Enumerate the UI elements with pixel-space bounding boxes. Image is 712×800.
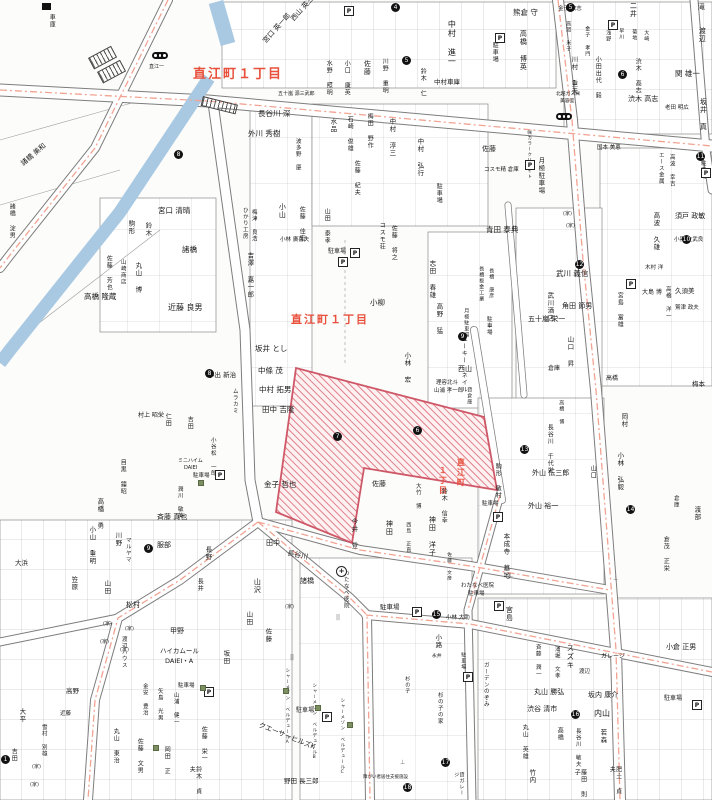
map-label: 小谷松 一郎	[209, 437, 215, 477]
bus-stop-icon	[556, 113, 572, 120]
map-label: 梅津 良浩	[250, 209, 256, 242]
parking-icon: P	[608, 20, 618, 30]
map-label: 北越ガス㈱	[556, 92, 580, 97]
map-label: 斉藤 真也	[157, 514, 187, 521]
map-label: 木村 洋	[645, 266, 663, 272]
map-label: 高波 幸吉	[668, 154, 674, 187]
map-label: 外山 裕一	[528, 503, 558, 510]
map-label: 山田 泰孝	[323, 208, 329, 244]
map-label: 老田 明広	[665, 106, 689, 112]
map-label: 丸山 東治	[112, 728, 118, 764]
map-geometry	[0, 0, 712, 800]
map-label: 今井 登	[350, 518, 357, 550]
map-label: 川村 重夫	[570, 56, 577, 95]
map-label: 武川 義信	[556, 270, 588, 278]
map-label: 佐藤	[363, 60, 370, 76]
map-label: 村上 昭栄	[138, 413, 164, 419]
map-label: 高橋 博英	[519, 30, 526, 71]
map-label: 障がい者居住支援施設	[363, 776, 408, 781]
map-label: 目黒 鐘昭	[119, 459, 125, 495]
map-label: 直江一	[149, 65, 164, 70]
map-label: 杉の子	[404, 676, 409, 694]
map-label: 竹内	[528, 769, 535, 784]
district-label: 直江町１丁目	[193, 68, 283, 82]
building-number-badge: 12	[575, 260, 584, 269]
map-label: 笠原	[70, 576, 77, 591]
map-label: 丸山 英雄	[521, 724, 527, 760]
parking-icon: P	[338, 257, 348, 267]
map-label: 貸ガレージ	[453, 772, 464, 800]
map-label: 吉田	[10, 748, 16, 762]
map-label: 坂井 真	[699, 98, 706, 131]
field-mark: ⊥	[400, 760, 405, 766]
map-label: 神田	[385, 520, 392, 536]
building-marker	[198, 480, 204, 486]
map-label: 波多野 慶	[294, 138, 300, 171]
map-label: 中村車庫	[434, 79, 460, 86]
map-label: 小柳	[370, 299, 385, 307]
map-label: 山浦 孝一郎	[434, 389, 463, 395]
map-label: コスモ荘	[378, 222, 384, 250]
map-label: 涌堀 文孝	[553, 646, 559, 679]
map-label: シャーメゾン ベルデュールC	[339, 698, 344, 776]
map-label: 小林 大助	[446, 616, 470, 622]
map-label: 佐藤	[264, 628, 271, 643]
district-label: 直江町	[456, 458, 464, 488]
map-label: 川野	[114, 532, 121, 547]
map-label: 大平	[18, 708, 25, 723]
building-number-badge: 5	[566, 3, 575, 12]
house-marker: (家)	[120, 648, 129, 653]
map-label: わたなべ医院	[461, 584, 494, 590]
map-label: 大竹 博	[414, 483, 420, 510]
building-number-badge: 14	[626, 505, 635, 514]
map-label: 熊倉 守	[513, 9, 538, 17]
building-marker	[315, 705, 321, 711]
map-label: 山田	[245, 611, 252, 626]
map-label: 松村	[126, 602, 140, 609]
city-block	[250, 106, 312, 406]
map-label: 西島 正直	[405, 522, 410, 553]
city-block	[0, 520, 292, 800]
house-marker: (家)	[563, 212, 572, 217]
map-label: 山口	[589, 465, 595, 479]
map-label: 鈴木 信幸	[440, 488, 446, 524]
map-label: 坂田	[222, 650, 229, 665]
building-marker	[200, 685, 206, 691]
map-label: 車庫	[48, 14, 54, 28]
map-label: ガーデンのぞみ	[482, 662, 488, 708]
map-label: 梅田 野作	[366, 113, 372, 149]
map-label: 浅野	[605, 30, 610, 42]
map-label: 金子 哲也	[264, 481, 296, 489]
map-label: 小林 弘毅	[616, 452, 623, 491]
map-label: 高橋	[606, 376, 618, 382]
building-number-badge: 5	[402, 56, 411, 65]
parking-icon: P	[215, 470, 225, 480]
building-number-badge: 10	[682, 235, 691, 244]
map-label: 高野	[66, 688, 79, 695]
field-mark: ⊥	[613, 576, 618, 582]
map-label: 杉の子の家	[436, 692, 442, 725]
map-label: 倉庫	[672, 495, 678, 508]
map-label: 宮口 清晴	[158, 207, 190, 215]
map-label: 小山	[278, 203, 285, 219]
map-label: 長橋 康彦	[488, 268, 493, 299]
map-label: 鷲津 政夫	[675, 306, 699, 312]
map-label: 渡部	[693, 506, 700, 521]
map-label: 田中	[266, 540, 280, 547]
map-label: 駐車場	[468, 592, 485, 598]
map-label: 佐藤 将之	[390, 225, 396, 261]
map-label: 早川	[618, 28, 623, 40]
map-label: エース金属	[657, 152, 663, 185]
map-label: マルヤマ	[124, 537, 130, 563]
map-label: 諸橋	[300, 578, 314, 585]
map-label: 駒形 敏村	[494, 463, 500, 499]
map-label: 山口 昇	[566, 336, 573, 368]
map-label: 高橋	[556, 727, 562, 741]
map-label: 志田 春雄	[428, 260, 435, 299]
map-label: 仁田	[164, 413, 170, 427]
map-label: 山浦 健一	[172, 692, 178, 725]
map-label: 長井	[196, 578, 202, 592]
building-number-badge: 13	[520, 445, 529, 454]
map-label: 駒形	[127, 220, 134, 235]
house-marker: (家)	[566, 224, 575, 229]
map-viewport[interactable]: 直江町１丁目直江町１丁目直江町１丁目車庫直江一諸橋 美和諸橋 淀男宮口 清晴駒形…	[0, 0, 712, 800]
map-label: 吉田	[186, 416, 192, 430]
map-label: 山沢	[253, 578, 260, 594]
map-label: 渋木 高志	[628, 96, 658, 103]
map-label: 高橋 洋一	[664, 286, 670, 319]
map-label: 高波 久雄	[652, 212, 659, 251]
map-label: 駐車場	[664, 696, 682, 702]
building-marker	[347, 722, 353, 728]
map-label: DAIEI・A	[165, 658, 193, 665]
building-number-badge: 18	[403, 783, 412, 792]
map-label: 駐車場	[193, 474, 210, 480]
map-label: ミニハイム	[178, 459, 203, 464]
map-label: 駐車場	[485, 316, 491, 336]
map-label: 高岡 米子	[565, 21, 570, 52]
bus-stop-icon	[152, 52, 168, 59]
map-label: 大島 博	[642, 290, 662, 296]
map-label: ハイカムール	[160, 648, 199, 655]
map-label: 高橋 勇	[96, 498, 103, 530]
map-label: 金子 孝門	[584, 26, 589, 57]
map-label: 金安 豊治	[141, 683, 147, 716]
map-label: 美容室	[560, 99, 574, 104]
map-label: ㈱カラークリエイト	[526, 130, 531, 180]
map-label: 坂内 康介	[588, 692, 618, 699]
building-number-badge: 8	[205, 369, 214, 378]
map-label: 駐車場	[380, 604, 400, 611]
map-label: 野田 長三郎	[284, 778, 319, 785]
house-marker: (家)	[103, 622, 112, 627]
map-label: 佐藤 栄一	[200, 726, 206, 762]
map-label: 近藤	[60, 712, 71, 718]
map-label: 高橋 隆蔵	[84, 293, 116, 301]
map-label: 岡村	[620, 413, 627, 428]
map-label: 西山	[458, 366, 472, 373]
building-number-badge: 6	[618, 70, 627, 79]
map-label: 渋木 高志	[634, 58, 640, 94]
map-label: 駐車場	[328, 249, 346, 255]
map-label: 高野 猛	[435, 303, 442, 335]
building-number-badge: 7	[333, 432, 342, 441]
house-marker: (家)	[32, 765, 41, 770]
map-label: 貸倉庫	[466, 387, 471, 405]
house-marker: (家)	[100, 640, 109, 645]
building-marker	[153, 745, 159, 751]
map-label: 外山 伝三郎	[532, 470, 569, 477]
map-label: 山崎商店	[119, 259, 125, 285]
parking-icon: P	[692, 700, 702, 710]
parking-icon: P	[322, 712, 332, 722]
map-label: 内山	[594, 710, 610, 718]
map-label: 鈴木	[144, 222, 151, 237]
map-label: 諸橋 淀男	[8, 203, 14, 239]
map-label: 駐車場	[296, 708, 314, 714]
map-label: 中條 茂	[258, 367, 283, 375]
map-label: 二井	[629, 2, 636, 18]
map-label: 大崎	[643, 30, 648, 42]
map-label: 川野 重明	[381, 58, 387, 94]
map-label: 甲野	[170, 628, 184, 635]
map-label: ひかり工房	[241, 207, 247, 240]
map-label: 中村 進一	[447, 20, 455, 66]
map-label: ムラカミ	[231, 388, 237, 414]
map-label: 関 雄一	[675, 70, 700, 78]
map-label: 神田 洋子	[428, 516, 435, 557]
map-label: 青田 泰典	[486, 226, 518, 234]
parking-icon: P	[463, 672, 473, 682]
map-label: 斉藤 潤一	[534, 644, 540, 677]
district-label: 直江町１丁目	[291, 314, 369, 326]
map-label: 小路	[434, 634, 441, 649]
map-label: 月極駐車場	[537, 157, 544, 195]
map-label: 駐車場	[460, 652, 465, 670]
building-number-badge: 4	[391, 3, 400, 12]
map-label: 水品	[329, 118, 336, 133]
house-marker: (家)	[285, 605, 294, 610]
map-label: スズキ	[566, 644, 574, 670]
map-label: 坂井 とし	[255, 345, 287, 353]
map-label: 長谷川 敏夫	[574, 728, 580, 768]
field-mark: ||	[336, 615, 340, 621]
map-label: 佐藤 芳也	[105, 255, 111, 291]
map-label: 小林 廣喜夫	[280, 238, 309, 244]
map-label: 佐藤 文男	[136, 738, 142, 774]
house-marker: (家)	[30, 783, 39, 788]
field-mark: ⊥	[508, 573, 513, 579]
parking-icon: P	[626, 279, 636, 289]
map-label: 小倉 正男	[666, 644, 696, 651]
map-label: 諸橋	[182, 246, 197, 254]
map-label: 佐藤	[372, 481, 386, 488]
parking-icon: P	[495, 33, 505, 43]
map-label: 小田出代 毅	[594, 56, 600, 99]
map-symbol	[42, 3, 51, 10]
map-label: 高橋 博	[558, 400, 563, 425]
map-label: 角田 節男	[562, 303, 592, 310]
map-label: 長谷川 深	[258, 110, 290, 118]
parking-icon: P	[493, 512, 503, 522]
map-label: 石崎 俊雄	[346, 116, 352, 152]
map-label: 倉茂 正栄	[662, 536, 668, 572]
parking-icon: P	[412, 607, 422, 617]
map-label: 小山 重明	[88, 526, 95, 565]
building-number-badge: 15	[432, 610, 441, 619]
map-label: 長橋板金工業	[478, 266, 483, 302]
map-label: 佐藤	[482, 146, 496, 153]
map-label: 小口 康英	[343, 60, 349, 96]
map-label: 鈴木 貞夫	[188, 766, 201, 800]
map-label: 五十嵐 源三武郎	[278, 92, 315, 97]
map-label: 倉庫	[548, 366, 560, 372]
map-label: DAIEI	[184, 466, 197, 471]
map-label: 藤田 則子	[573, 769, 586, 800]
map-label: 矢島 光男	[156, 688, 162, 721]
map-label: 宮島	[505, 606, 512, 622]
map-label: 近藤 良男	[168, 304, 203, 312]
building-number-badge: 9	[144, 544, 153, 553]
field-mark: ||	[290, 655, 294, 661]
parking-icon: P	[344, 6, 354, 16]
map-label: 国本 美恵	[597, 146, 621, 152]
map-label: 中村 拓男	[259, 386, 291, 394]
building-number-badge: 11	[696, 152, 705, 161]
building-number-badge: 17	[441, 758, 450, 767]
parking-icon: P	[494, 601, 504, 611]
building-marker	[283, 688, 289, 694]
parking-icon: P	[701, 168, 711, 178]
map-label: ガレージ	[601, 654, 625, 660]
map-label: 田中 吉隆	[262, 406, 294, 414]
map-label: 渡辺	[579, 670, 590, 676]
building-number-badge: 8	[174, 150, 183, 159]
map-label: 吉澤 嘉一郎	[246, 252, 253, 299]
map-label: 山田	[103, 580, 110, 595]
map-label: 佐藤 文彦	[446, 552, 451, 581]
map-label: 理容北斗	[436, 381, 458, 387]
building-number-badge: 16	[571, 710, 580, 719]
map-label: 梅本	[692, 381, 705, 388]
map-label: 雪村 別雄	[40, 724, 46, 757]
parking-icon: P	[525, 160, 535, 170]
map-label: 駐車場	[178, 684, 195, 690]
map-label: 長谷川 千代栄	[546, 424, 552, 474]
map-label: 駐車場	[491, 42, 497, 63]
map-label: 駐車場	[435, 183, 441, 204]
map-label: 鈴木 仁	[419, 68, 425, 97]
map-label: 中村 淳三	[388, 118, 395, 157]
map-label: 中村 弘行	[416, 138, 423, 177]
map-label: 岡田 正	[163, 746, 169, 775]
map-label: 丸山 博	[134, 262, 141, 294]
map-label: 水野 照明	[325, 60, 331, 96]
building-number-badge: 6	[413, 426, 422, 435]
map-label: 服部	[157, 542, 171, 549]
parking-icon: P	[350, 248, 360, 258]
map-label: 肥土 貞夫	[608, 766, 621, 800]
map-label: 渡辺	[698, 27, 705, 43]
map-label: 佐藤 紀夫	[353, 160, 359, 196]
map-label: 須戸 政敏	[675, 213, 705, 220]
building-number-badge: 1	[1, 755, 10, 764]
map-label: 宮島 富雄	[616, 292, 622, 328]
map-label: 久須美	[675, 288, 695, 295]
map-label: 駐車場	[482, 502, 499, 508]
map-label: 滝	[697, 3, 704, 11]
map-label: 外川 秀樹	[248, 130, 280, 138]
map-label: 大浜	[15, 560, 28, 567]
map-label: 長野	[204, 546, 211, 561]
map-label: 小林 宏	[403, 352, 410, 384]
map-label: 若森	[599, 729, 606, 744]
map-label: コスモ精 倉庫	[484, 168, 519, 174]
map-label: 菊地	[631, 29, 636, 41]
map-label: 丸山 勝弘	[534, 689, 564, 696]
clinic-icon: +	[336, 566, 347, 577]
map-label: 永井	[432, 654, 442, 659]
house-marker: (家)	[125, 627, 134, 632]
building-number-badge: 9	[458, 332, 467, 341]
map-label: 渋谷 清市	[527, 706, 557, 713]
map-label: 五十嵐 栄一	[528, 316, 565, 323]
